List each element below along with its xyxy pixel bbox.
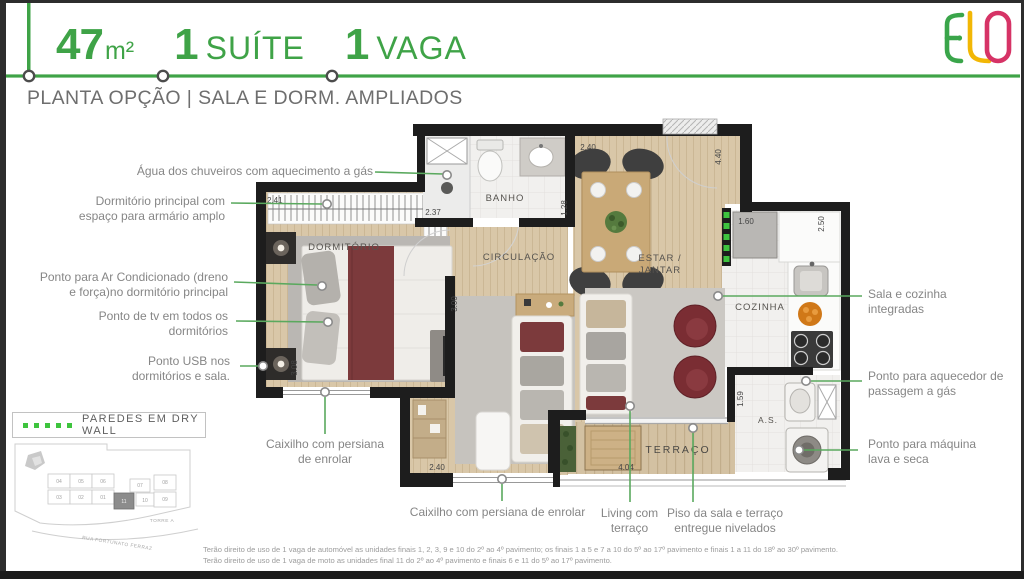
marker-window-living	[498, 475, 506, 483]
callout-aquecedor-gas: Ponto para aquecedor de passagem a gás	[868, 369, 1003, 399]
keyplan: 04 05 06 07 08 03 02 01 11 10 09 TORRE A…	[10, 441, 206, 555]
marker-washer	[795, 446, 803, 454]
bed-blanket	[348, 246, 394, 380]
callout-maquina-lava-seca: Ponto para máquina lava e seca	[868, 437, 976, 467]
dim-banho-d: 1.28	[560, 200, 569, 216]
suite-count: 1	[174, 20, 197, 70]
table-plant	[605, 211, 627, 233]
shower-drain	[441, 182, 453, 194]
elo-logo	[932, 8, 1014, 70]
header-stats: 47m² 1SUÍTE 1VAGA	[56, 20, 467, 70]
area-number: 47	[56, 20, 103, 70]
marker-window-dorm	[321, 388, 329, 396]
callout-ponto-usb: Ponto USB nos dormitórios e sala.	[132, 354, 230, 384]
keyplan-unit-label: 02	[78, 495, 84, 501]
keyplan-unit-label: 05	[78, 479, 84, 485]
marker-ac	[318, 282, 326, 290]
callout-armario-amplo: Dormitório principal com espaço para arm…	[79, 194, 225, 224]
entry-door	[663, 119, 717, 134]
marker-shower	[443, 171, 451, 179]
dim-dorm-d: 3.08	[290, 360, 299, 376]
dim-cozinha-w: 1.60	[738, 217, 754, 226]
keyplan-unit-label: 08	[162, 480, 168, 486]
disclaimer: Terão direito de uso de 1 vaga de automó…	[203, 545, 933, 566]
rule-node-1	[24, 71, 34, 81]
keyplan-unit-label: 04	[56, 479, 62, 485]
room-label-banho: BANHO	[486, 193, 525, 204]
callout-caixilho-dormitorio: Caixilho com persiana de enrolar	[250, 437, 400, 467]
disclaimer-line-1: Terão direito de uso de 1 vaga de automó…	[203, 545, 933, 556]
vaga-label: VAGA	[376, 30, 467, 67]
marker-floor-level	[689, 424, 697, 432]
drywall-dash-sample	[23, 423, 72, 428]
callout-agua-chuveiros: Água dos chuveiros com aquecimento a gás	[137, 164, 373, 179]
callout-sala-cozinha: Sala e cozinha integradas	[868, 287, 947, 317]
dim-estar-d: 4.40	[714, 149, 723, 165]
pan	[798, 302, 822, 326]
logo-letter-o	[987, 13, 1009, 61]
dim-terraco-w: 4.04	[618, 463, 634, 472]
keyplan-unit-label: 10	[142, 498, 148, 504]
keyplan-unit-label: 03	[56, 495, 62, 501]
coffee-table	[476, 412, 510, 470]
dim-sala-d: 3.00	[450, 296, 459, 312]
keyplan-unit-label: 01	[100, 495, 106, 501]
dim-as-d: 1.59	[736, 391, 745, 407]
frame-edge-top	[0, 0, 1024, 3]
keyplan-street	[32, 529, 198, 540]
page-title: PLANTA OPÇÃO | SALA E DORM. AMPLIADOS	[27, 87, 463, 110]
drywall-legend: PAREDES EM DRY WALL	[12, 412, 206, 438]
room-label-cozinha: COZINHA	[735, 302, 785, 313]
dim-cozinha-d: 2.50	[817, 216, 826, 232]
callout-ar-condicionado: Ponto para Ar Condicionado (dreno e forç…	[40, 270, 228, 300]
room-label-dormitorio: DORMITÓRIO	[308, 242, 380, 253]
marker-heater	[802, 377, 810, 385]
callout-caixilho-sala: Caixilho com persiana de enrolar	[400, 505, 595, 520]
keyplan-unit-label: 07	[137, 483, 143, 489]
area-unit: m²	[105, 37, 134, 66]
room-label-estar: ESTAR /	[638, 253, 681, 264]
marker-living	[626, 402, 634, 410]
disclaimer-line-2: Terão direito de uso de 1 vaga de moto a…	[203, 556, 933, 567]
bookshelf	[413, 400, 446, 458]
room-label-jantar: JANTAR	[639, 265, 681, 276]
room-label-circulacao: CIRCULAÇÃO	[483, 252, 555, 263]
keyplan-unit-label-highlighted: 11	[121, 499, 126, 505]
vaga-count: 1	[345, 20, 368, 70]
suite-label: SUÍTE	[206, 30, 305, 67]
callout-piso-nivelado: Piso da sala e terraço entregue nivelado…	[655, 506, 795, 536]
dim-estar-w: 2.40	[580, 143, 596, 152]
kitchen-counter	[779, 212, 840, 262]
pillow	[301, 310, 340, 365]
drywall-legend-label: PAREDES EM DRY WALL	[82, 413, 205, 437]
drywall-dash	[724, 212, 730, 218]
dim-sala-w: 2.40	[429, 463, 445, 472]
callout-ponto-tv: Ponto de tv em todos os dormitórios	[99, 309, 228, 339]
rule-node-3	[327, 71, 337, 81]
bathroom-sink	[529, 147, 553, 167]
keyplan-tower-label: TORRE A	[150, 518, 175, 524]
pillow	[301, 250, 342, 306]
marker-tv	[324, 318, 332, 326]
rule-node-2	[158, 71, 168, 81]
marker-wardrobe	[323, 200, 331, 208]
room-label-as: A.S.	[758, 415, 778, 425]
marker-kitchen	[714, 292, 722, 300]
frame-edge-bottom	[0, 571, 1024, 579]
dim-banho-w: 2.37	[425, 208, 441, 217]
toilet	[477, 140, 503, 150]
keyplan-unit-label: 06	[100, 479, 106, 485]
marker-usb	[259, 362, 267, 370]
room-label-terraco: TERRAÇO	[645, 444, 710, 456]
keyplan-unit-label: 09	[162, 497, 168, 503]
frame-edge-left	[0, 0, 6, 579]
